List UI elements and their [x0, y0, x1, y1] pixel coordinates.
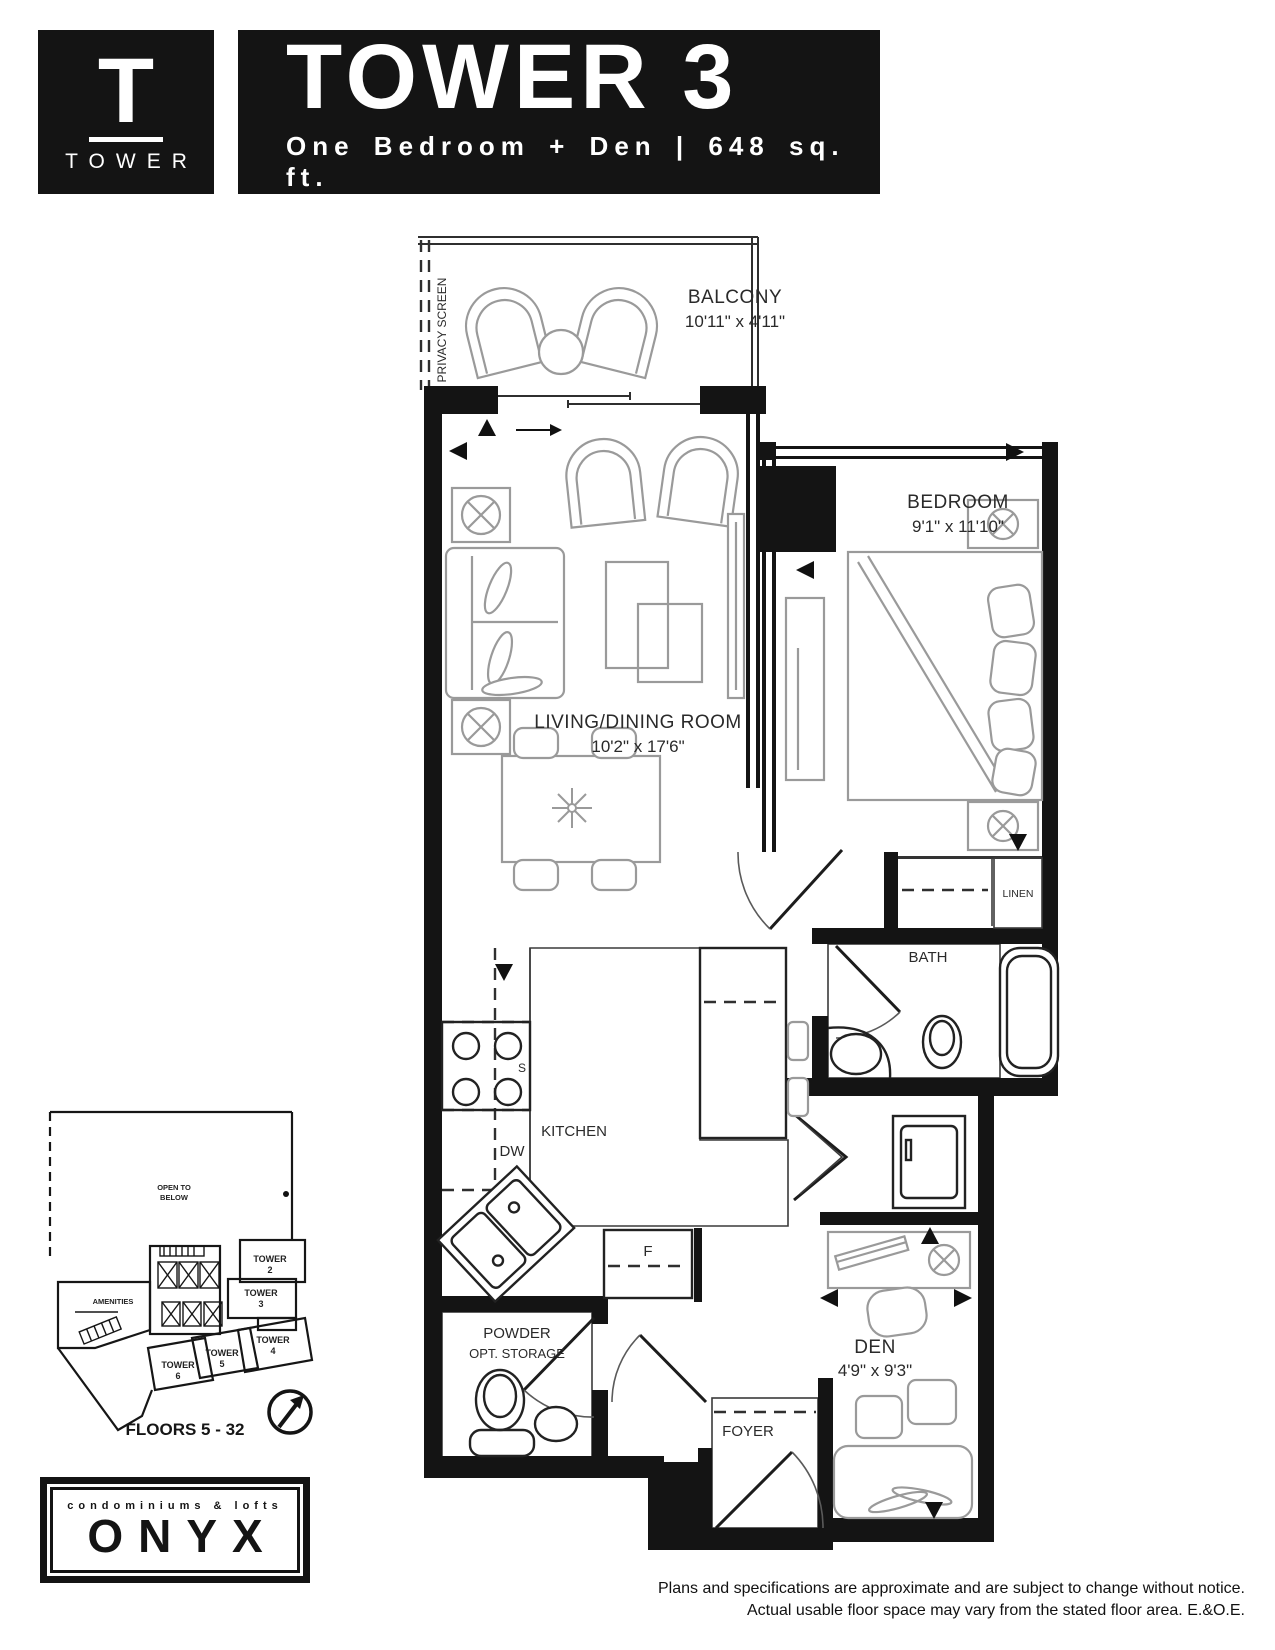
flow-arrow-down: [495, 964, 513, 981]
den-table: [856, 1396, 902, 1438]
tower-4-label: TOWER: [256, 1335, 290, 1345]
tower-3-label: TOWER: [244, 1288, 278, 1298]
tower-2-label: TOWER: [253, 1254, 287, 1264]
linen-label: LINEN: [1003, 888, 1034, 900]
tower-4-num: 4: [270, 1346, 275, 1356]
kitchen-peninsula: [700, 948, 786, 1138]
tower-6-num: 6: [175, 1371, 180, 1381]
balcony-dims: 10'11" x 4'11": [685, 312, 785, 331]
bar-stool: [788, 1022, 808, 1060]
flow-arrow-right: [954, 1289, 972, 1307]
bath-sink: [831, 1034, 881, 1074]
tower-2-num: 2: [267, 1265, 272, 1275]
powder-fixtures: [470, 1370, 577, 1456]
stove-burner: [453, 1033, 479, 1059]
bedroom-dims: 9'1" x 11'10": [912, 517, 1004, 536]
armchair: [658, 432, 743, 526]
kitchen-fixtures: [438, 948, 808, 1302]
bed-pillow: [987, 698, 1035, 753]
amenities-wing: [58, 1282, 150, 1348]
bed-pillow: [990, 747, 1037, 797]
disclaimer: Plans and specifications are approximate…: [605, 1578, 1245, 1623]
dining-chair: [514, 860, 558, 890]
key-plan: OPEN TO BELOW AMENITIES TOWER 2 TOWER 3 …: [50, 1112, 312, 1433]
flow-arrow-left: [820, 1289, 838, 1307]
bedroom-door: [770, 850, 842, 929]
onyx-logo: condominiums & lofts ONYX: [40, 1477, 310, 1583]
tower-6-label: TOWER: [161, 1360, 195, 1370]
bed-pillow: [989, 640, 1037, 697]
open-to-below-label-1: OPEN TO: [157, 1183, 191, 1192]
bath-door: [836, 946, 900, 1012]
laundry-bifold-door: [794, 1114, 846, 1200]
bath-label: BATH: [909, 949, 948, 966]
living-room-furniture: [446, 432, 744, 890]
washer-dryer: [893, 1116, 965, 1208]
balcony-slider-door: [498, 392, 700, 436]
stove-burner: [453, 1079, 479, 1105]
toilet: [923, 1016, 961, 1068]
bedroom-column: [760, 466, 836, 552]
tower-5-label: TOWER: [205, 1348, 239, 1358]
balcony-chair: [571, 280, 665, 378]
onyx-name: ONYX: [87, 1512, 277, 1560]
bath-fixtures: [828, 948, 1058, 1078]
dishwasher-label: DW: [500, 1143, 526, 1160]
coffee-table: [638, 604, 702, 682]
entry-door: [716, 1452, 792, 1528]
floors-range-label: FLOORS 5 - 32: [110, 1420, 260, 1440]
tower-5-num: 5: [219, 1359, 224, 1369]
stove-burner: [495, 1033, 521, 1059]
bar-stool: [788, 1078, 808, 1116]
bed-pillow: [986, 583, 1035, 639]
north-arrow-icon: [269, 1391, 311, 1433]
keyplan-stairs: [79, 1317, 121, 1344]
stove-burner: [495, 1079, 521, 1105]
privacy-screen-label: PRIVACY SCREEN: [435, 278, 449, 383]
hall-door: [640, 1335, 706, 1402]
desk-chair: [865, 1285, 929, 1339]
balcony-label: BALCONY: [688, 287, 782, 308]
powder-sink: [535, 1407, 577, 1441]
powder-label: POWDER: [483, 1325, 551, 1342]
balcony-chair: [458, 280, 552, 378]
flow-arrow-left: [449, 442, 467, 460]
living-dims: 10'2" x 17'6": [591, 737, 684, 756]
disclaimer-line-1: Plans and specifications are approximate…: [605, 1578, 1245, 1600]
flow-arrow-up: [478, 419, 496, 436]
bathtub: [1000, 948, 1058, 1076]
bedroom-furniture: [786, 500, 1042, 850]
table-centerpiece: [552, 788, 592, 828]
fridge: [604, 1230, 692, 1298]
kitchen-sink: [438, 1166, 574, 1301]
tower-3-num: 3: [258, 1299, 263, 1309]
powder-sub-label: OPT. STORAGE: [469, 1346, 565, 1361]
balcony-table: [539, 330, 583, 374]
elevator-core: [150, 1246, 220, 1334]
bedroom-label: BEDROOM: [907, 492, 1009, 513]
stove-label: S: [518, 1061, 526, 1075]
keyplan-tower-4: [238, 1318, 312, 1372]
den-table: [908, 1380, 956, 1424]
kitchen-label: KITCHEN: [541, 1123, 607, 1140]
flow-arrow-left: [796, 561, 814, 579]
open-to-below-label-2: BELOW: [160, 1193, 189, 1202]
amenities-label: AMENITIES: [93, 1297, 134, 1306]
floor-plan-canvas: PRIVACY SCREEN BALCONY 10'11" x 4'11" LI…: [0, 0, 1275, 1650]
powder-vanity: [470, 1430, 534, 1456]
dining-chair: [592, 860, 636, 890]
den-label: DEN: [854, 1337, 896, 1358]
living-label: LIVING/DINING ROOM: [534, 712, 741, 733]
fridge-label: F: [643, 1243, 652, 1260]
armchair: [563, 435, 645, 527]
laundry-closet: [893, 1116, 965, 1208]
slider-direction-arrow: [550, 424, 562, 436]
disclaimer-line-2: Actual usable floor space may vary from …: [605, 1600, 1245, 1622]
dresser: [786, 598, 824, 780]
foyer-label: FOYER: [722, 1423, 774, 1440]
elevators: [158, 1246, 222, 1326]
den-dims: 4'9" x 9'3": [838, 1361, 912, 1380]
